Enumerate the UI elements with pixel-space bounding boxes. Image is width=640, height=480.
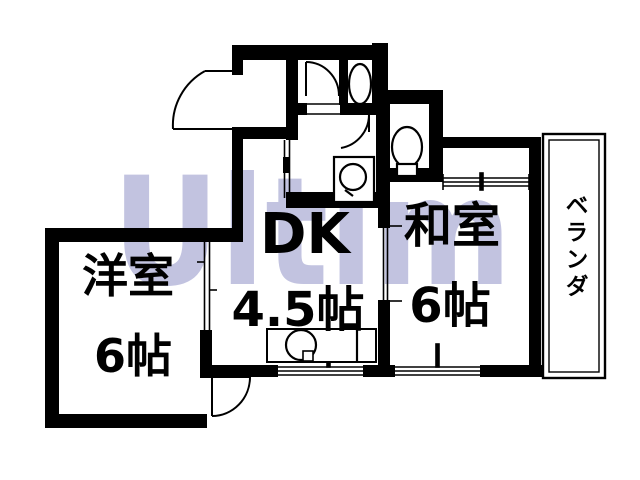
washbasin — [334, 157, 374, 202]
western-room-name: 洋室 — [82, 249, 174, 303]
veranda-label: ベランダ — [561, 193, 589, 301]
wall — [243, 127, 288, 139]
wall — [45, 228, 59, 428]
floorplan-image: Ultim — [0, 0, 640, 480]
wall — [339, 55, 348, 105]
wall — [529, 137, 541, 377]
wall — [45, 414, 207, 428]
wall — [45, 228, 243, 242]
wall — [232, 128, 243, 240]
floorplan-svg: Ultim — [0, 0, 640, 480]
japanese-room-name: 和室 — [404, 198, 500, 254]
western-room-size: 6帖 — [94, 329, 172, 383]
wall — [363, 365, 395, 377]
wall — [378, 192, 390, 228]
dk-room-name: DK — [260, 202, 352, 267]
dk-room-size: 4.5帖 — [231, 282, 364, 338]
wall — [203, 365, 278, 377]
wall — [438, 137, 535, 148]
wall — [286, 55, 298, 140]
japanese-room-size: 6帖 — [409, 278, 490, 334]
wall — [290, 103, 307, 115]
toilet — [392, 127, 422, 176]
wall — [480, 365, 543, 377]
wall — [376, 100, 390, 208]
wall — [232, 45, 388, 60]
bathtub — [349, 64, 371, 104]
